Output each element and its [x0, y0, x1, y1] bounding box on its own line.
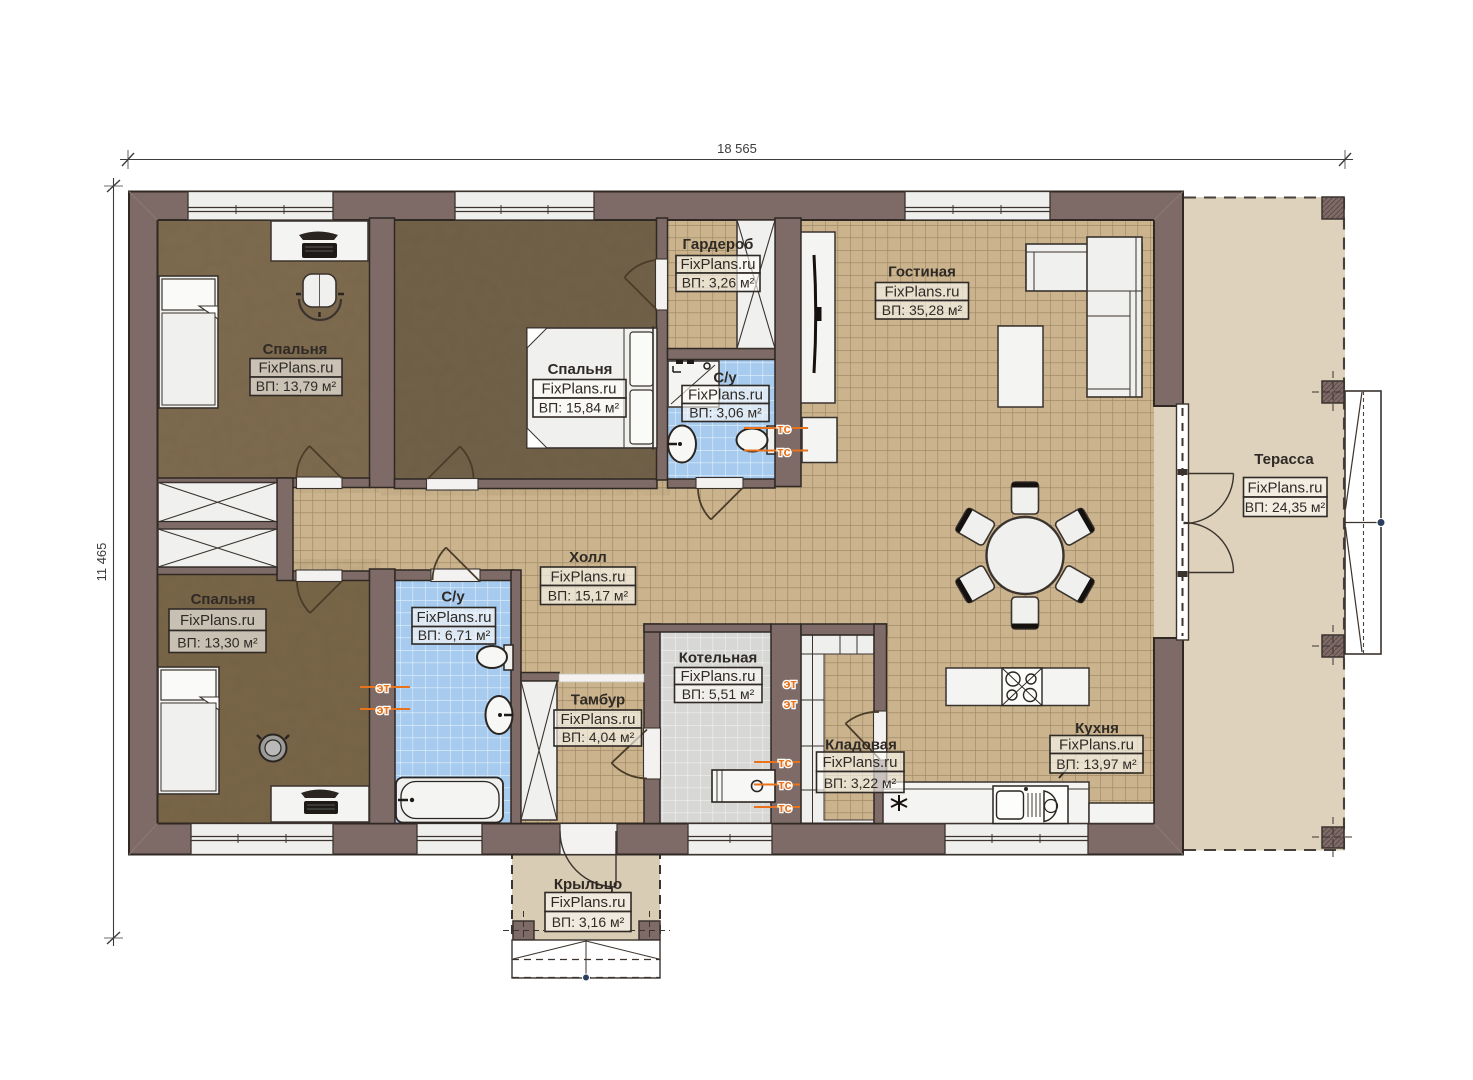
svg-text:Спальня: Спальня [191, 591, 256, 608]
svg-text:тс: тс [777, 444, 790, 459]
svg-text:ВП: 3,16 м²: ВП: 3,16 м² [552, 914, 625, 930]
svg-text:FixPlans.ru: FixPlans.ru [560, 711, 635, 728]
svg-text:ВП: 15,17 м²: ВП: 15,17 м² [548, 588, 629, 604]
svg-text:11 465: 11 465 [94, 543, 109, 582]
svg-text:ВП: 3,22 м²: ВП: 3,22 м² [824, 775, 897, 791]
svg-text:18 565: 18 565 [717, 141, 757, 156]
svg-text:Крыльцо: Крыльцо [554, 876, 622, 893]
svg-text:С/у: С/у [441, 589, 465, 606]
svg-text:ВП: 13,79 м²: ВП: 13,79 м² [256, 378, 337, 394]
svg-text:FixPlans.ru: FixPlans.ru [550, 894, 625, 911]
svg-text:Гардероб: Гардероб [683, 236, 754, 253]
svg-text:FixPlans.ru: FixPlans.ru [550, 569, 625, 586]
svg-text:Спальня: Спальня [548, 361, 613, 378]
svg-text:эт: эт [376, 702, 389, 717]
svg-text:эт: эт [783, 696, 796, 711]
svg-text:С/у: С/у [713, 370, 737, 387]
svg-text:FixPlans.ru: FixPlans.ru [180, 612, 255, 629]
svg-text:FixPlans.ru: FixPlans.ru [541, 381, 616, 398]
svg-text:эт: эт [376, 680, 389, 695]
svg-text:Тамбур: Тамбур [571, 692, 625, 709]
svg-text:FixPlans.ru: FixPlans.ru [884, 284, 959, 301]
svg-text:FixPlans.ru: FixPlans.ru [688, 387, 763, 404]
svg-text:ВП: 15,84 м²: ВП: 15,84 м² [539, 400, 620, 416]
svg-text:ВП: 24,35 м²: ВП: 24,35 м² [1245, 499, 1326, 515]
svg-text:ВП: 4,04 м²: ВП: 4,04 м² [562, 729, 635, 745]
svg-text:Кладовая: Кладовая [825, 737, 897, 754]
svg-text:тс: тс [777, 421, 790, 436]
svg-text:FixPlans.ru: FixPlans.ru [822, 754, 897, 771]
svg-text:Спальня: Спальня [263, 341, 328, 358]
svg-text:FixPlans.ru: FixPlans.ru [258, 360, 333, 377]
svg-text:ВП: 3,26 м²: ВП: 3,26 м² [682, 275, 755, 291]
svg-text:FixPlans.ru: FixPlans.ru [1059, 737, 1134, 754]
svg-text:тс: тс [778, 755, 791, 770]
svg-text:ВП: 13,97 м²: ВП: 13,97 м² [1056, 756, 1137, 772]
svg-text:FixPlans.ru: FixPlans.ru [680, 668, 755, 685]
svg-text:тс: тс [778, 777, 791, 792]
svg-text:тс: тс [778, 800, 791, 815]
svg-text:ВП: 35,28 м²: ВП: 35,28 м² [882, 302, 963, 318]
svg-text:эт: эт [783, 676, 796, 691]
svg-text:Гостиная: Гостиная [888, 264, 956, 281]
svg-text:ВП: 5,51 м²: ВП: 5,51 м² [682, 686, 755, 702]
svg-text:ВП: 6,71 м²: ВП: 6,71 м² [418, 627, 491, 643]
svg-text:Кухня: Кухня [1075, 720, 1119, 737]
svg-text:FixPlans.ru: FixPlans.ru [416, 609, 491, 626]
svg-text:FixPlans.ru: FixPlans.ru [1247, 480, 1322, 497]
svg-text:ВП: 3,06 м²: ВП: 3,06 м² [689, 405, 762, 421]
svg-text:Терасса: Терасса [1254, 451, 1314, 468]
svg-text:Холл: Холл [569, 549, 607, 566]
svg-text:Котельная: Котельная [679, 650, 758, 667]
svg-text:ВП: 13,30 м²: ВП: 13,30 м² [177, 635, 258, 651]
svg-text:FixPlans.ru: FixPlans.ru [680, 256, 755, 273]
